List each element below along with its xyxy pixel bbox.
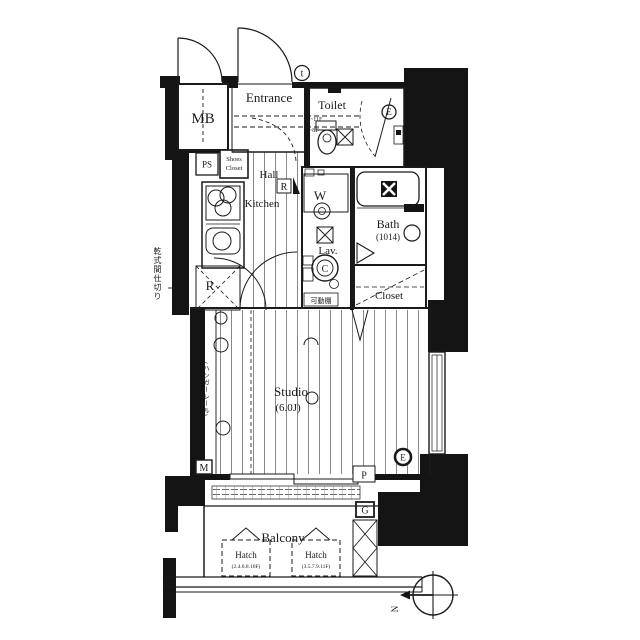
window-right-icon (429, 352, 445, 454)
floor-plan-drawing: t MB PS Shoes Closet Entrance (0, 0, 640, 640)
sliding-door-panel (294, 479, 358, 484)
hanger-rail-note: (ハンガーレール) (201, 362, 208, 440)
bath-label: Bath (377, 217, 400, 231)
washroom (302, 167, 352, 308)
lavatory-label: Lav. (318, 245, 337, 257)
shoes-closet-label-1: Shoes (226, 156, 242, 163)
e-marker-studio-label: E (400, 453, 406, 463)
stove-icon (206, 186, 240, 220)
hatch1-label: Hatch (235, 550, 257, 560)
floor-plan: t MB PS Shoes Closet Entrance (0, 0, 640, 640)
entrance-label: Entrance (246, 90, 292, 105)
closet-label: Closet (375, 290, 403, 302)
kitchen-counter (202, 182, 244, 268)
shoes-closet-label-2: Closet (226, 165, 243, 172)
bath-door-icon (357, 243, 374, 263)
sink-icon (206, 228, 240, 254)
hatch2-label: Hatch (305, 550, 327, 560)
towel-ring-icon (404, 225, 420, 241)
floor-variant-label-b: 2~8F (306, 128, 319, 134)
shoes-closet-box (220, 150, 248, 178)
sliding-door-panel (230, 474, 294, 479)
fridge-space (196, 266, 240, 310)
lavatory-vanity-icon (317, 227, 333, 243)
shower-fixture-icon (404, 204, 424, 212)
bath-size-label: (1014) (376, 232, 400, 242)
compass-icon (400, 571, 458, 619)
entry-doors (178, 28, 310, 82)
balcony-edge (165, 577, 422, 592)
compass-north-label: N (390, 605, 400, 612)
hatch2-floors-label: (3.5.7.9.11F) (302, 563, 331, 570)
washer-label: W (314, 188, 327, 203)
ps-label: PS (202, 160, 212, 170)
hall-label: Hall (260, 169, 279, 181)
toilet-label: Toilet (318, 98, 346, 112)
entrance-door-arc-icon (238, 28, 292, 82)
dry-partition-note: 乾式間仕切り (153, 247, 161, 333)
m-marker-label: M (200, 463, 209, 474)
kitchen-label: Kitchen (245, 198, 280, 210)
studio-label: Studio (274, 384, 308, 399)
p-marker-label: P (361, 471, 367, 482)
bath-room (354, 167, 426, 265)
c-marker-label: C (322, 264, 329, 275)
hall-r-label: R (281, 182, 288, 193)
balcony-label: Balcony (261, 530, 305, 545)
bathtub-icon (357, 172, 419, 206)
movable-shelf-label: 可動棚 (311, 296, 332, 305)
fridge-label: R (206, 278, 215, 293)
floor-variant-label-a: 9~11F (307, 117, 323, 123)
mb-door-arc-icon (178, 38, 222, 82)
gas-marker-label: G (361, 506, 368, 517)
e-marker-toilet-label: E (386, 107, 392, 117)
door-t-marker-label: t (301, 69, 304, 80)
hatch1-floors-label: (2.4.6.8.10F) (232, 563, 261, 570)
toilet-vent-icon (328, 88, 341, 93)
studio-size-label: (6.0J) (275, 402, 301, 414)
mb-label: MB (191, 111, 214, 127)
